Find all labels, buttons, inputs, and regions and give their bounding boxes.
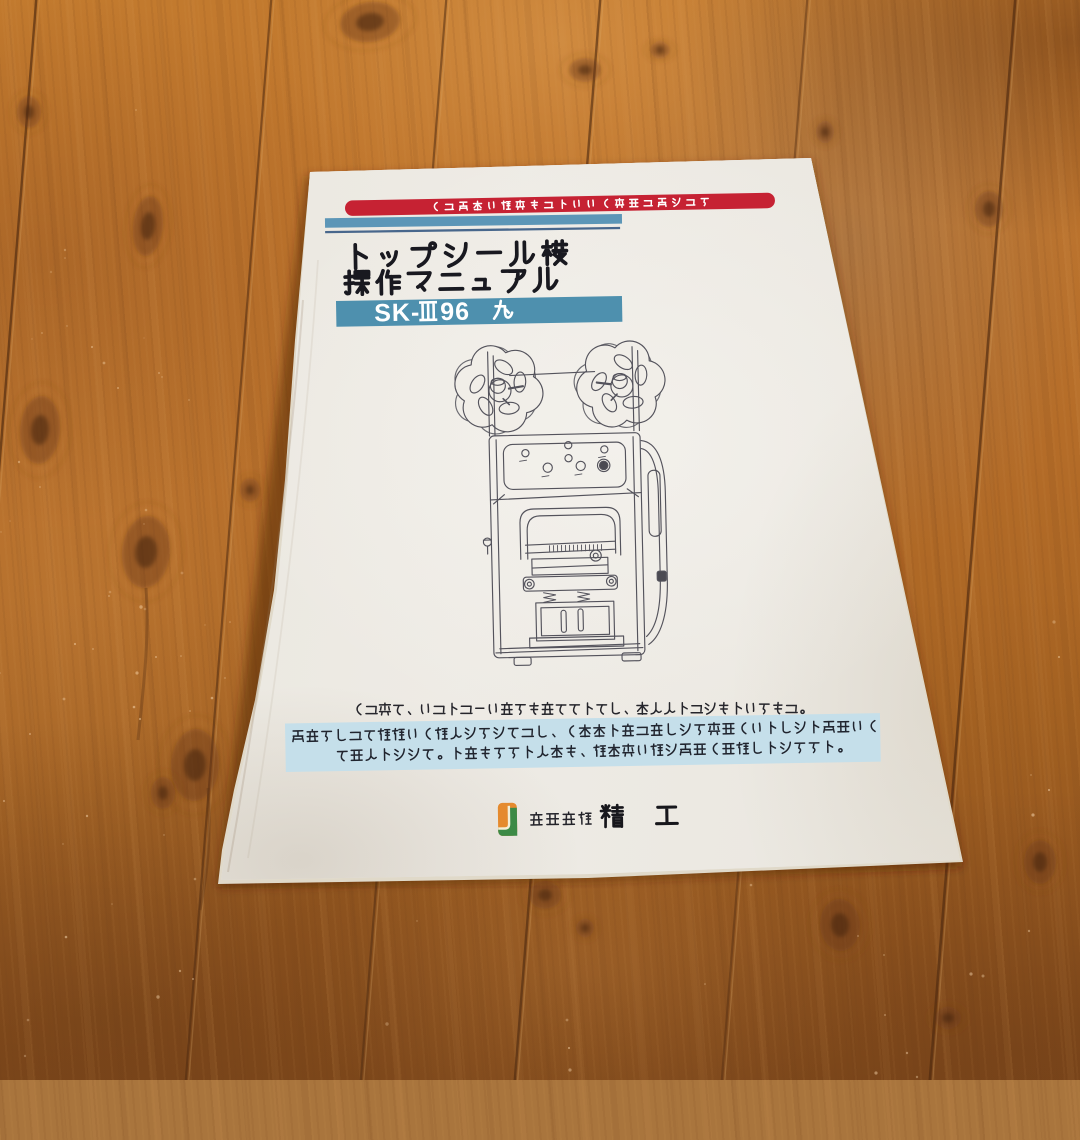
svg-text:96: 96	[440, 298, 470, 327]
svg-text:SK-: SK-	[374, 299, 421, 328]
